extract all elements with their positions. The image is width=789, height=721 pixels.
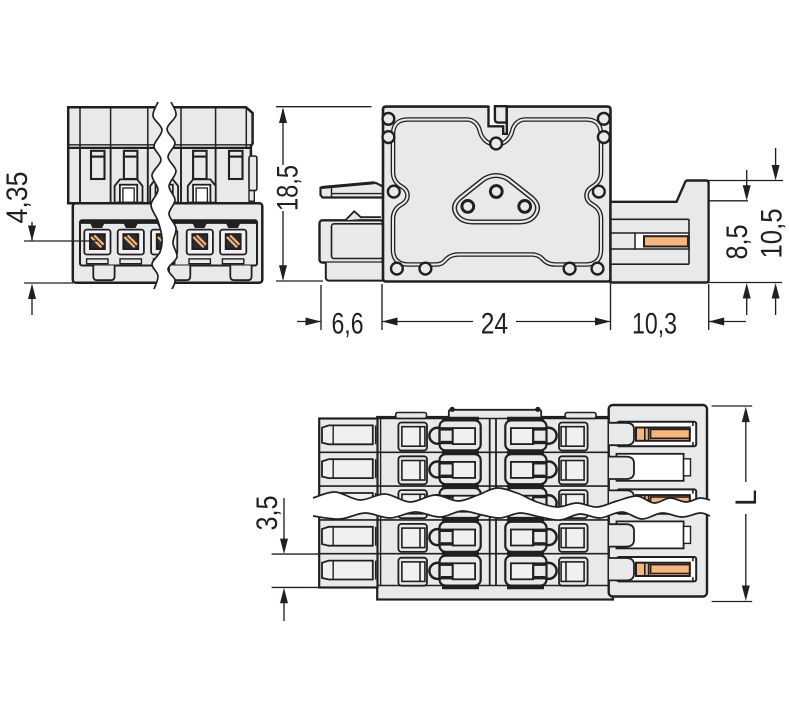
svg-text:6,6: 6,6 [332,307,364,340]
svg-text:L: L [730,490,763,506]
svg-text:8,5: 8,5 [721,225,754,260]
svg-text:10,3: 10,3 [632,307,677,340]
svg-text:18,5: 18,5 [271,165,304,211]
svg-text:3,5: 3,5 [251,496,284,531]
svg-text:4,35: 4,35 [1,172,34,224]
svg-text:24: 24 [481,307,508,340]
svg-text:10,5: 10,5 [755,209,788,259]
